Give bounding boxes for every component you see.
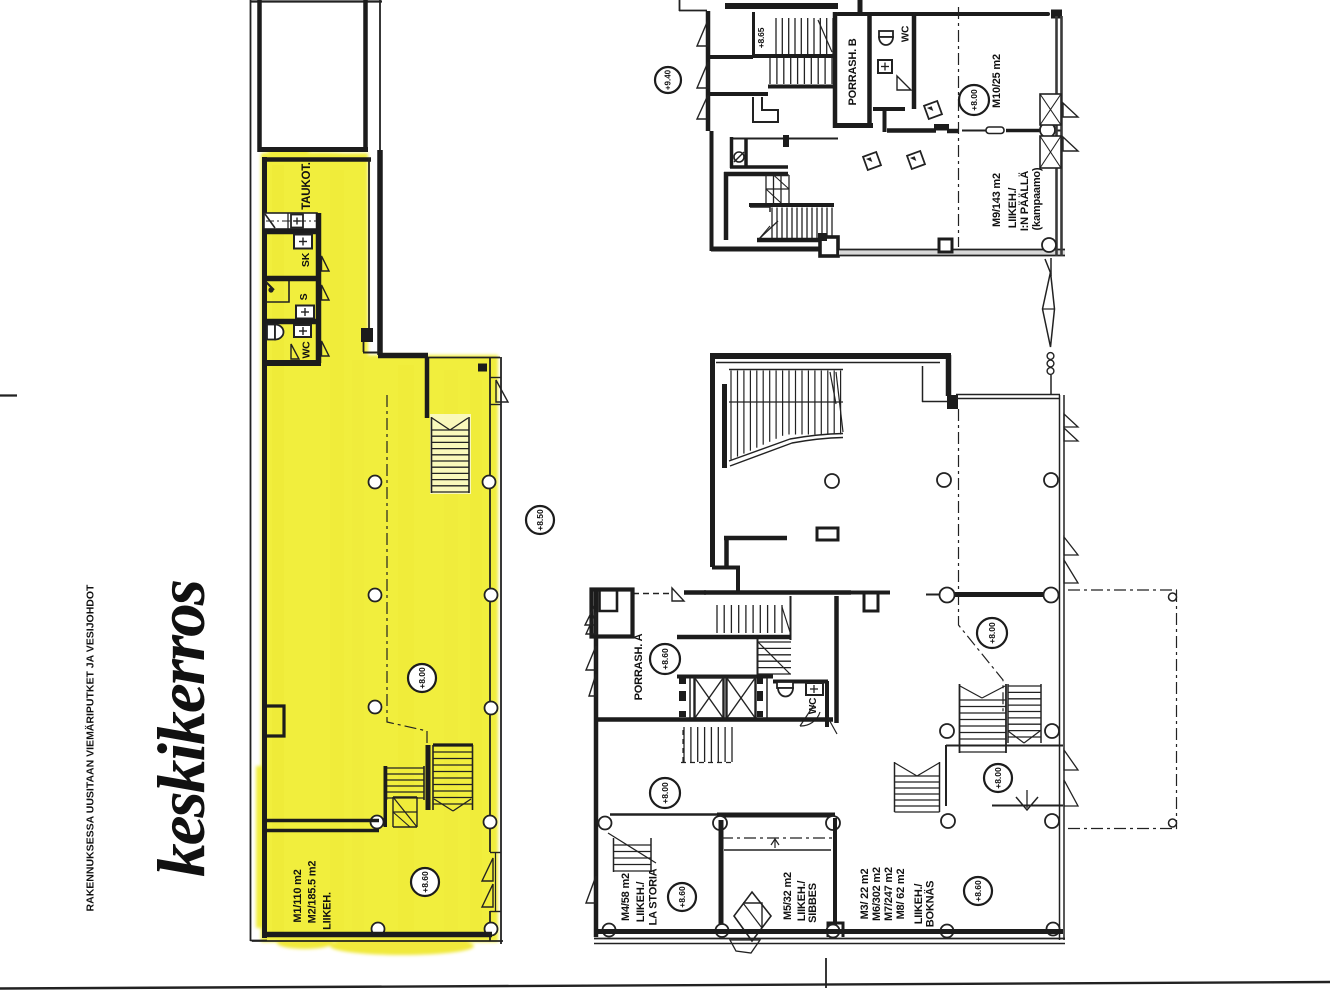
- svg-text:SIBBES: SIBBES: [807, 883, 819, 923]
- svg-text:+8.65: +8.65: [756, 27, 766, 48]
- svg-text:keskikerros: keskikerros: [143, 580, 219, 877]
- svg-text:LA STORIA: LA STORIA: [648, 868, 660, 925]
- svg-text:I:N PÄÄLLÄ: I:N PÄÄLLÄ: [1018, 171, 1031, 232]
- svg-text:M9/143 m2: M9/143 m2: [991, 173, 1003, 227]
- svg-text:BOKNÄS: BOKNÄS: [924, 881, 937, 927]
- svg-text:+9.40: +9.40: [664, 69, 673, 90]
- svg-text:+8.00: +8.00: [417, 667, 427, 689]
- svg-text:SK: SK: [300, 252, 312, 267]
- svg-text:+8.00: +8.00: [969, 89, 979, 111]
- svg-text:WC: WC: [301, 341, 313, 359]
- svg-text:M1/110 m2: M1/110 m2: [292, 869, 304, 922]
- svg-text:+8.60: +8.60: [660, 648, 670, 670]
- svg-text:+8.00: +8.00: [987, 622, 997, 644]
- svg-text:LIIKEH./: LIIKEH./: [1007, 188, 1019, 229]
- svg-text:M8/ 62 m2: M8/ 62 m2: [895, 869, 907, 920]
- svg-text:M5/32 m2: M5/32 m2: [782, 872, 794, 920]
- svg-text:LIIKEH./: LIIKEH./: [913, 884, 925, 925]
- svg-text:M3/ 22 m2: M3/ 22 m2: [859, 869, 871, 920]
- svg-text:+8.60: +8.60: [420, 871, 430, 893]
- svg-text:+8.60: +8.60: [677, 886, 687, 908]
- svg-text:LIIKEH./: LIIKEH./: [635, 882, 647, 923]
- svg-text:PORRASH. B: PORRASH. B: [847, 38, 859, 105]
- svg-text:+8.00: +8.00: [660, 782, 670, 804]
- svg-text:+8.00: +8.00: [993, 767, 1003, 789]
- svg-text:M2/185.5 m2: M2/185.5 m2: [307, 861, 319, 924]
- svg-text:+8.60: +8.60: [973, 880, 983, 902]
- svg-text:+8.50: +8.50: [535, 509, 545, 531]
- svg-text:TAUKOT.: TAUKOT.: [301, 162, 313, 210]
- svg-text:WC: WC: [901, 26, 912, 42]
- svg-text:(kampaamo): (kampaamo): [1031, 167, 1043, 230]
- svg-text:M7/247 m2: M7/247 m2: [883, 867, 895, 921]
- svg-text:RAKENNUKSESSA UUSITAAN VIEMÄ: RAKENNUKSESSA UUSITAAN VIEMÄRIPUTKET JA …: [84, 584, 97, 911]
- svg-text:M10/25 m2: M10/25 m2: [991, 54, 1003, 108]
- svg-text:PORRASH. A: PORRASH. A: [633, 633, 645, 700]
- svg-text:M6/302 m2: M6/302 m2: [871, 867, 883, 921]
- svg-text:LIIKEH.: LIIKEH.: [322, 892, 334, 930]
- svg-text:M4/58 m2: M4/58 m2: [620, 873, 632, 921]
- svg-text:S: S: [298, 293, 310, 300]
